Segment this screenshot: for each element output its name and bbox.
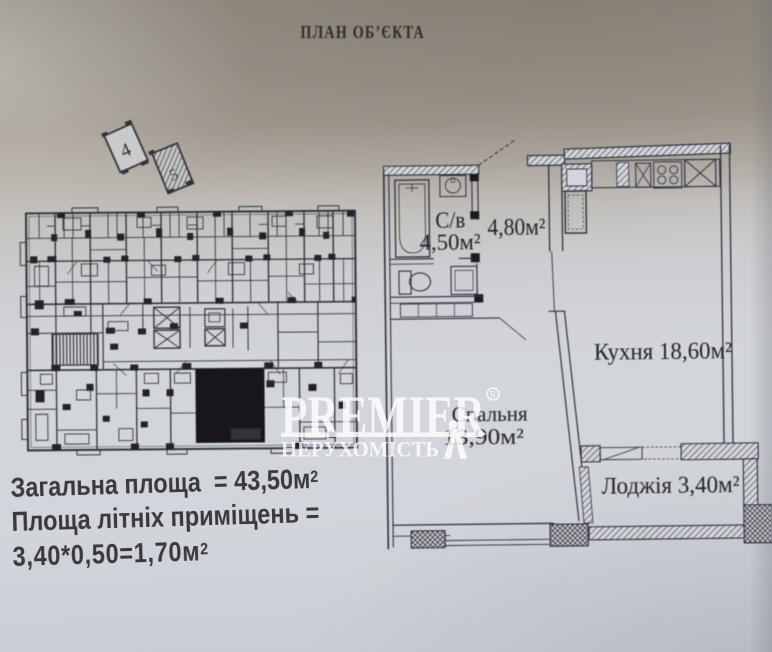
svg-text:R: R [490,390,496,400]
svg-text:Лоджія 3,40м²: Лоджія 3,40м² [601,472,739,500]
svg-text:Кухня 18,60м²: Кухня 18,60м² [594,338,732,366]
svg-text:4,50м²: 4,50м² [419,229,480,255]
svg-text:4,80м²: 4,80м² [487,214,545,241]
